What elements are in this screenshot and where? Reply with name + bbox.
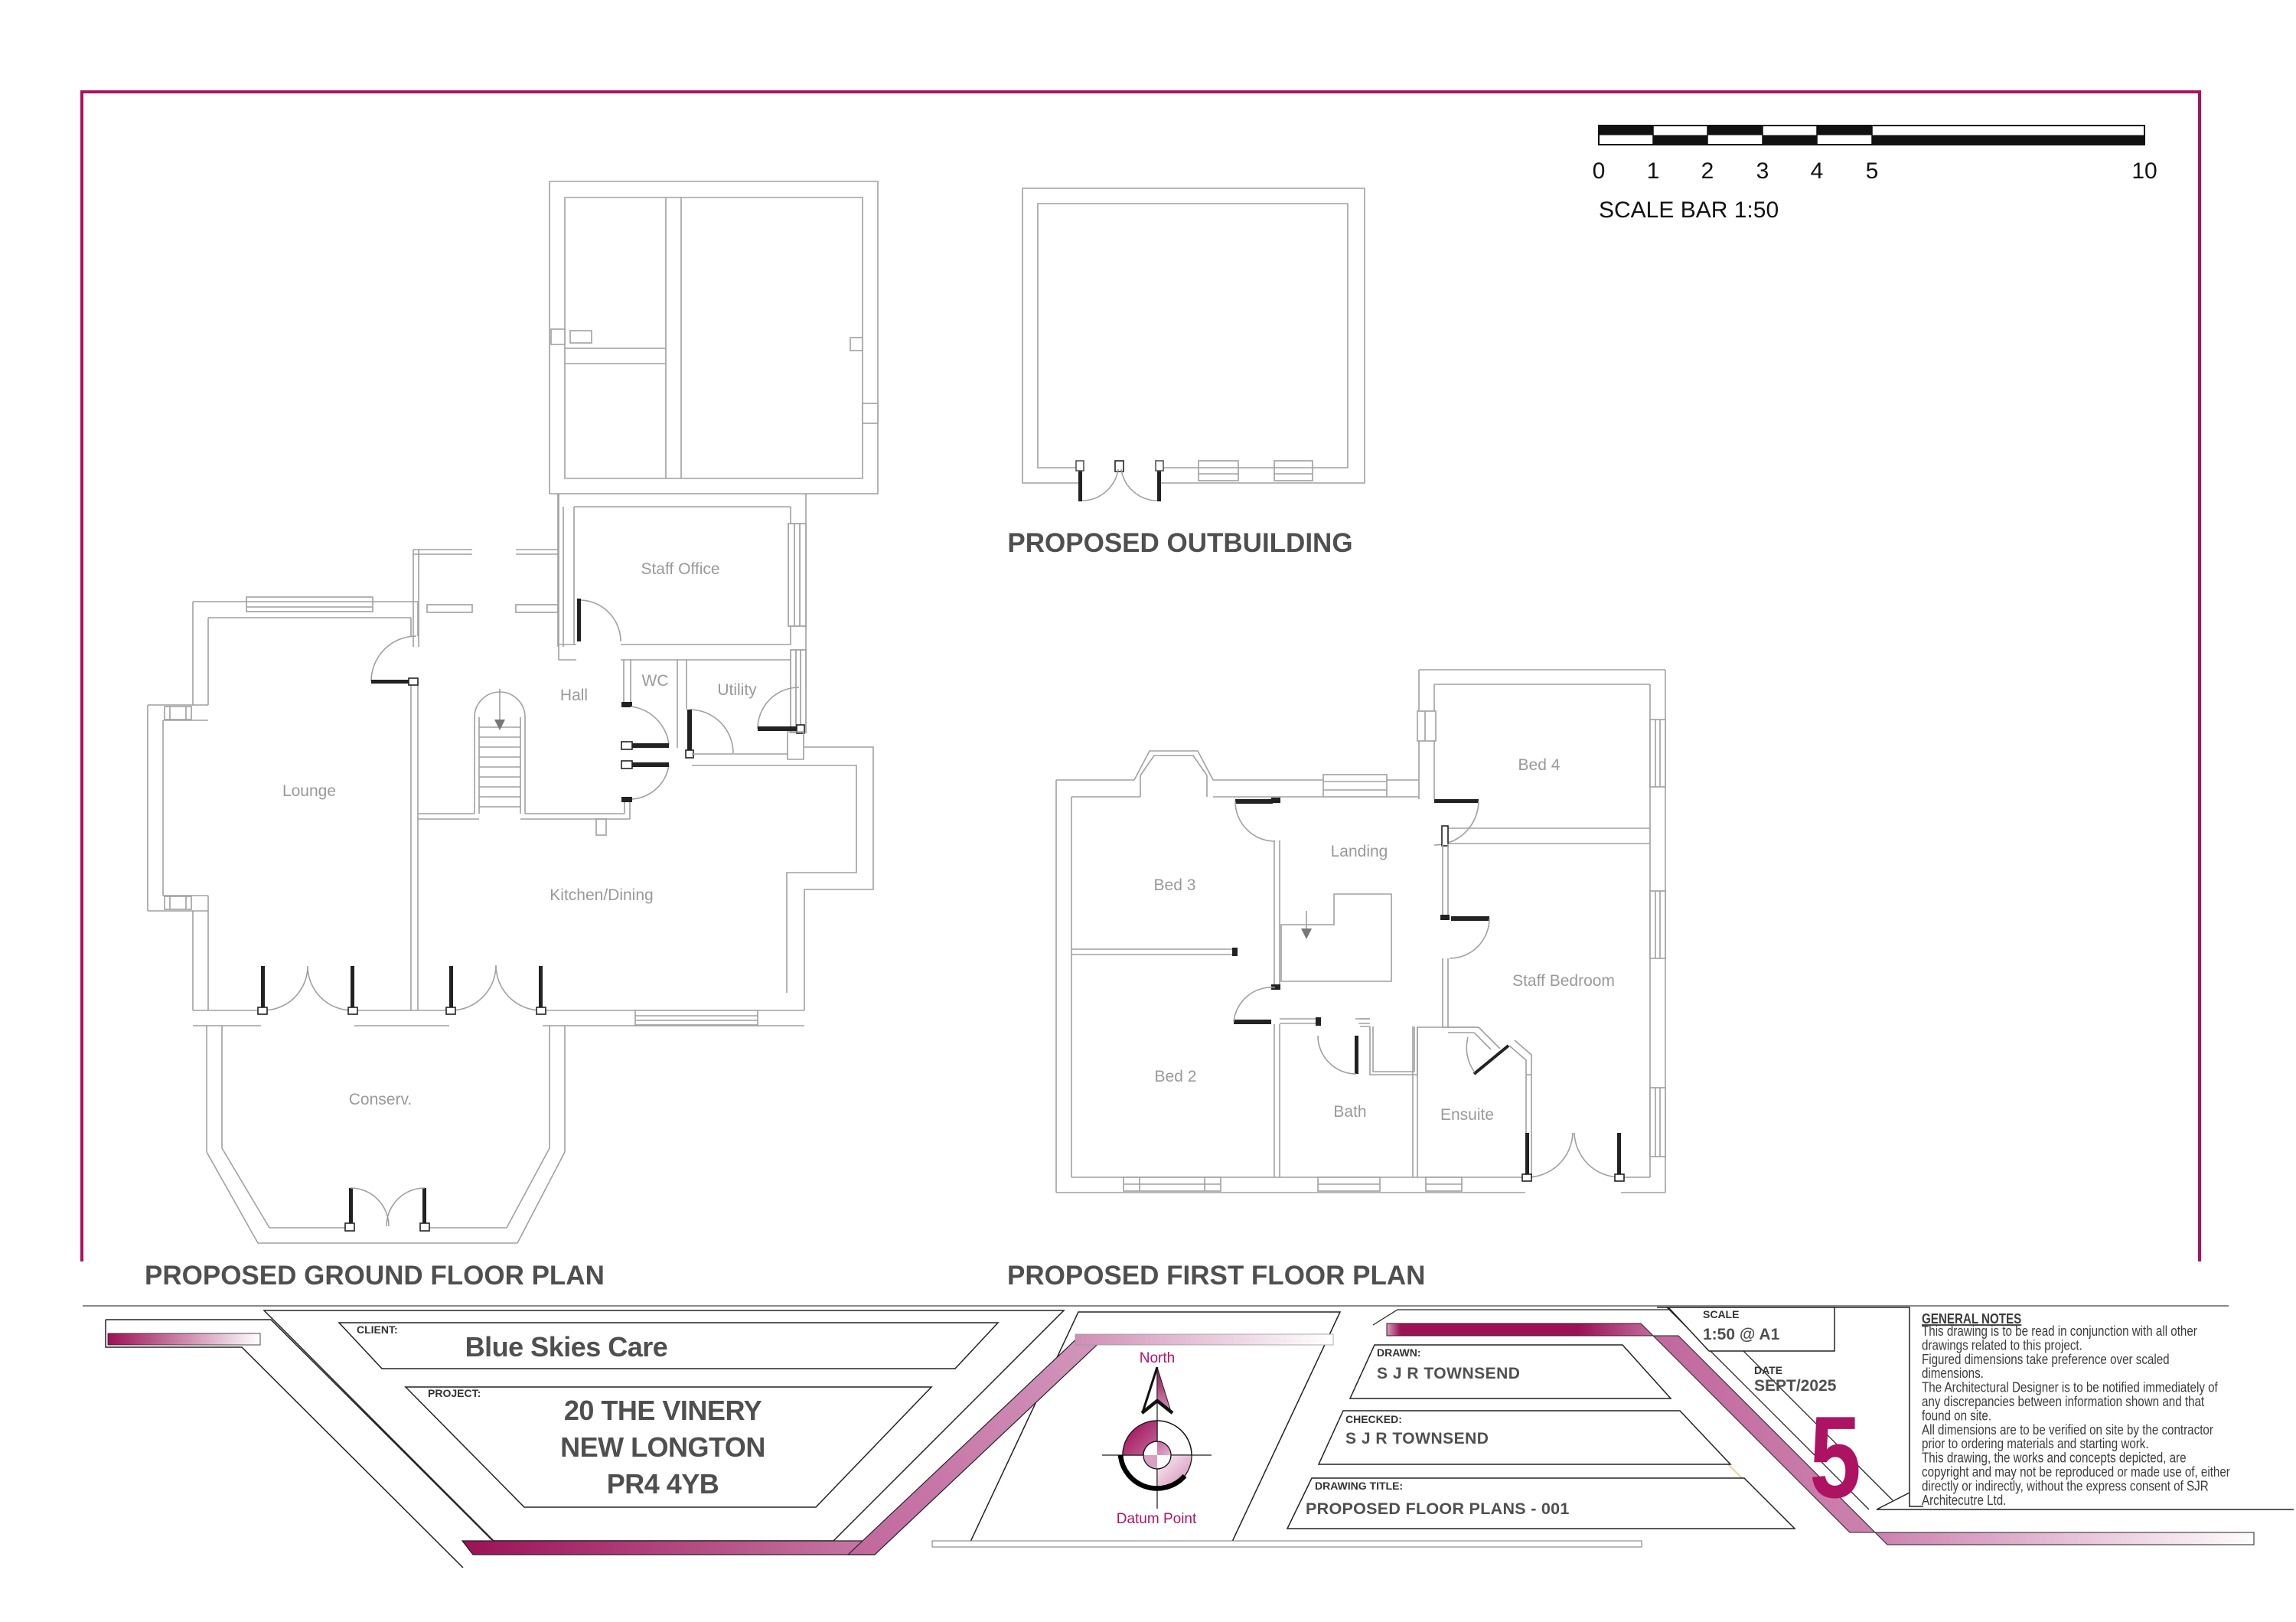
svg-text:Bed 2: Bed 2 [1155,1068,1197,1085]
svg-text:10: 10 [2131,158,2157,184]
svg-text:Conserv.: Conserv. [349,1091,412,1108]
svg-text:CHECKED:: CHECKED: [1345,1413,1402,1425]
svg-text:20 THE VINERY: 20 THE VINERY [564,1395,762,1426]
svg-text:Ensuite: Ensuite [1440,1106,1494,1124]
svg-text:PROPOSED FIRST FLOOR PLAN: PROPOSED FIRST FLOOR PLAN [1007,1261,1425,1291]
svg-text:Blue Skies Care: Blue Skies Care [465,1331,668,1363]
svg-text:5: 5 [1809,1392,1861,1522]
svg-text:Landing: Landing [1331,843,1388,860]
svg-text:DATE: DATE [1754,1364,1782,1376]
svg-text:1:50 @ A1: 1:50 @ A1 [1703,1326,1780,1343]
svg-text:PR4 4YB: PR4 4YB [607,1468,719,1500]
svg-text:Bed 4: Bed 4 [1518,756,1561,774]
svg-text:Staff Bedroom: Staff Bedroom [1512,972,1615,990]
svg-text:PROPOSED FLOOR PLANS - 001: PROPOSED FLOOR PLANS - 001 [1306,1500,1570,1518]
svg-text:DRAWN:: DRAWN: [1377,1346,1421,1359]
svg-text:PROPOSED OUTBUILDING: PROPOSED OUTBUILDING [1007,528,1352,558]
svg-text:DRAWING TITLE:: DRAWING TITLE: [1315,1480,1403,1492]
svg-text:SCALE BAR 1:50: SCALE BAR 1:50 [1599,197,1779,223]
svg-text:1: 1 [1647,158,1660,184]
svg-text:Hall: Hall [560,687,588,704]
svg-text:S J R TOWNSEND: S J R TOWNSEND [1345,1430,1489,1447]
svg-text:Architecutre Ltd.: Architecutre Ltd. [1922,1492,2006,1508]
svg-text:2: 2 [1701,158,1714,184]
svg-text:Datum Point: Datum Point [1117,1511,1197,1527]
svg-text:NEW LONGTON: NEW LONGTON [560,1431,765,1463]
svg-text:S J R TOWNSEND: S J R TOWNSEND [1377,1365,1520,1382]
svg-text:0: 0 [1593,158,1606,184]
svg-text:Bed 3: Bed 3 [1154,876,1196,894]
svg-text:Lounge: Lounge [282,782,336,800]
svg-text:3: 3 [1756,158,1769,184]
svg-text:Utility: Utility [717,681,757,699]
svg-text:PROPOSED GROUND FLOOR PLAN: PROPOSED GROUND FLOOR PLAN [145,1261,605,1291]
svg-text:5: 5 [1866,158,1879,184]
svg-text:CLIENT:: CLIENT: [357,1323,398,1336]
svg-text:Staff Office: Staff Office [641,560,719,578]
svg-text:4: 4 [1811,158,1824,184]
svg-text:WC: WC [642,672,669,690]
svg-text:North: North [1140,1350,1175,1366]
svg-text:Kitchen/Dining: Kitchen/Dining [550,886,653,904]
svg-text:SCALE: SCALE [1703,1308,1739,1320]
svg-text:PROJECT:: PROJECT: [428,1387,481,1399]
svg-text:Bath: Bath [1333,1103,1366,1121]
